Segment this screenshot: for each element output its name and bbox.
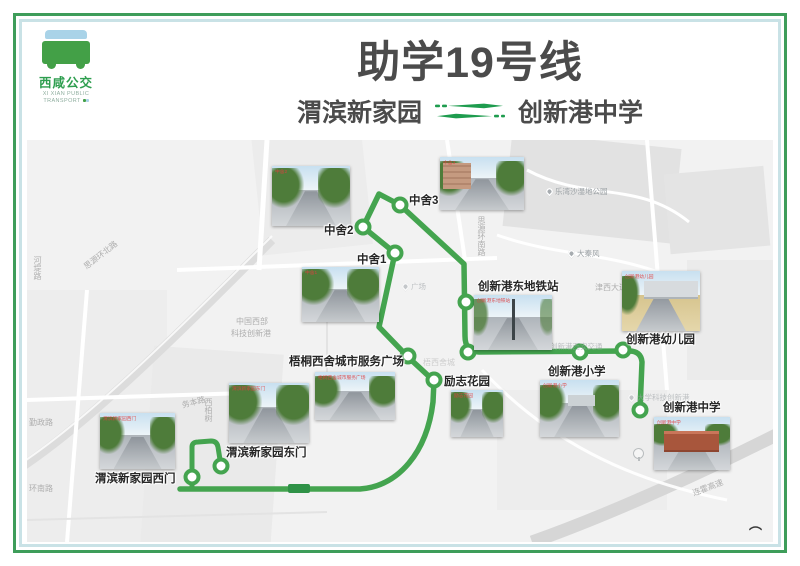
map-poi: 创新港西安交通 — [550, 341, 603, 352]
bus-route-poster: 西咸公交 XI XIAN PUBLIC TRANSPORT 助学19号线 渭滨新… — [0, 0, 800, 566]
map-overlay: 渭滨新家园西门渭滨新家园西门渭滨新家园东门渭滨新家园东门励志花园励志花园梧桐西舍… — [27, 140, 773, 542]
photo-tree — [474, 299, 489, 335]
road-label: 勤政路 — [29, 417, 53, 428]
photo-bld — [644, 281, 699, 299]
roundabout-tree-icon — [633, 448, 644, 461]
route-map: 渭滨新家园西门渭滨新家园西门渭滨新家园东门渭滨新家园东门励志花园励志花园梧桐西舍… — [27, 140, 773, 542]
photo-watermark: 创新港东地铁站 — [477, 297, 510, 304]
logo-dot-blue — [86, 99, 89, 102]
photo-tree — [276, 385, 309, 425]
photo-tree — [622, 276, 640, 316]
photo-tree — [482, 392, 503, 423]
logo-chinese-name: 西咸公交 — [36, 72, 96, 91]
stop-photo: 渭滨新家园西门 — [100, 413, 175, 469]
photo-tree — [150, 417, 175, 454]
road-label: 思源环北路 — [82, 239, 120, 272]
stop-photo: 中舍2 — [272, 166, 350, 226]
photo-tree — [540, 385, 566, 423]
photo-watermark: 励志花园 — [454, 392, 473, 399]
photo-watermark: 创新港幼儿园 — [625, 273, 654, 280]
photo-watermark: 中舍1 — [305, 269, 317, 276]
road-label: 科技创新港 — [231, 328, 271, 339]
road-label: 思源环南路 — [476, 216, 487, 256]
stop-label: 创新港幼儿园 — [626, 331, 695, 347]
stop-label: 渭滨新家园东门 — [226, 444, 307, 460]
photo-bld — [443, 163, 472, 188]
logo-english-line1: XI XIAN PUBLIC — [36, 91, 96, 98]
photo-tree — [100, 417, 125, 454]
stop-label: 中舍3 — [409, 192, 438, 208]
transport-logo: 西咸公交 XI XIAN PUBLIC TRANSPORT — [36, 30, 96, 105]
stop-photo: 中舍3 — [440, 157, 524, 210]
poi-text: 广场 — [411, 281, 426, 292]
photo-watermark: 中舍3 — [443, 159, 455, 166]
stop-photo: 创新港中学 — [654, 417, 730, 470]
poi-pin-icon — [545, 187, 555, 197]
photo-bld — [512, 299, 515, 340]
map-poi: 乐湾沙湿地公园 — [546, 186, 608, 197]
stop-label: 渭滨新家园西门 — [95, 470, 176, 486]
photo-bld — [568, 395, 595, 406]
photo-tree — [318, 168, 350, 208]
road-label: 中国西部 — [236, 316, 268, 327]
stop-photo: 创新港东地铁站 — [474, 295, 552, 350]
road-label: 环南路 — [29, 483, 53, 494]
photo-watermark: 创新港小学 — [543, 382, 567, 389]
route-title: 助学19号线 — [185, 28, 755, 90]
two-way-arrows-icon — [434, 100, 506, 122]
road-label: 梧西舍城 — [423, 357, 455, 368]
photo-tree — [347, 269, 379, 305]
stop-photo: 渭滨新家园东门 — [229, 383, 309, 443]
stop-label: 创新港小学 — [548, 363, 606, 379]
poi-text: 乐湾沙湿地公园 — [555, 186, 608, 197]
stop-photo: 中舍1 — [302, 267, 379, 322]
photo-bld — [664, 431, 719, 452]
road-label: 西柏树 — [203, 398, 214, 422]
photo-tree — [540, 299, 552, 335]
stop-label: 创新港东地铁站 — [478, 278, 559, 294]
poi-pin-icon — [627, 393, 637, 403]
bus-icon — [42, 30, 90, 69]
road-label: 河堤路 — [32, 256, 43, 280]
stop-photo: 励志花园 — [451, 390, 503, 437]
photo-watermark: 渭滨新家园西门 — [103, 415, 136, 422]
poi-text: 创新港西安交通 — [550, 341, 603, 352]
stop-label: 中舍2 — [324, 222, 353, 238]
corner-mark: ⌒ — [749, 523, 762, 542]
photo-tree — [369, 376, 395, 408]
origin-stop-name: 渭滨新家园 — [297, 93, 422, 129]
stop-label: 励志花园 — [444, 373, 490, 389]
stop-photo: 创新港小学 — [540, 380, 619, 437]
stop-label: 创新港中学 — [663, 399, 721, 415]
map-poi: 大秦风 — [568, 248, 600, 259]
poi-pin-icon — [567, 249, 577, 259]
header: 助学19号线 渭滨新家园 创新港中学 — [185, 28, 755, 129]
road-label: 连霍高速 — [691, 477, 725, 499]
poi-text: 大秦风 — [577, 248, 600, 259]
destination-stop-name: 创新港中学 — [518, 93, 643, 129]
map-poi: 广场 — [402, 281, 426, 292]
stop-label: 中舍1 — [357, 251, 386, 267]
photo-watermark: 中舍2 — [275, 168, 287, 175]
stop-photo: 梧桐西舍城市服务广场 — [315, 372, 395, 420]
poi-pin-icon — [401, 282, 411, 292]
photo-tree — [593, 385, 619, 423]
photo-watermark: 创新港中学 — [657, 419, 681, 426]
photo-watermark: 渭滨新家园东门 — [232, 385, 265, 392]
route-endpoints: 渭滨新家园 创新港中学 — [185, 93, 755, 129]
photo-tree — [496, 161, 524, 196]
stop-label: 梧桐西舍城市服务广场 — [289, 353, 404, 369]
logo-english-line2: TRANSPORT — [36, 98, 96, 105]
stop-photo: 创新港幼儿园 — [622, 271, 700, 331]
photo-watermark: 梧桐西舍城市服务广场 — [318, 374, 366, 381]
